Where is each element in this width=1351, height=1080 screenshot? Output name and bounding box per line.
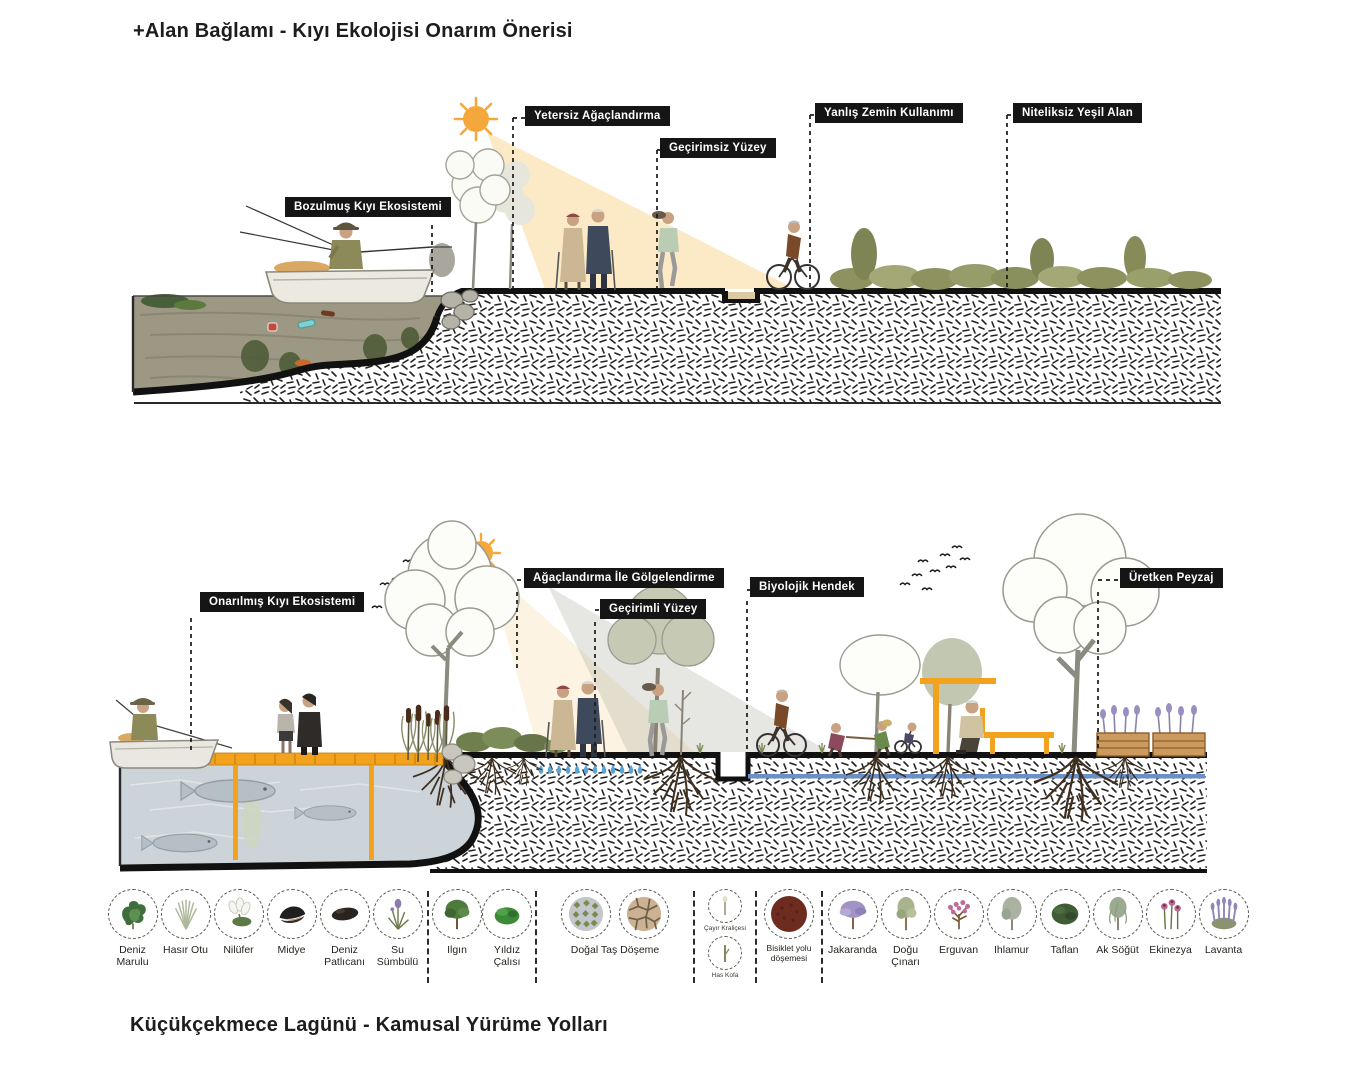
legend-label: Deniz Patlıcanı (318, 944, 371, 968)
judas-tree-icon (940, 895, 978, 933)
label-poor-quality-green-area: Niteliksiz Yeşil Alan (1013, 103, 1142, 123)
legend-item-nilufer: Nilüfer (212, 889, 265, 956)
water-lily-icon (220, 895, 258, 933)
echinacea-icon (1152, 895, 1190, 933)
legend-item-ak-sogut: Ak Söğüt (1091, 889, 1144, 956)
legend-item-ilgin: Ilgın (432, 889, 482, 956)
laurel-bush-icon (1046, 895, 1084, 933)
sea-cucumber-icon (326, 895, 364, 933)
water-hyacinth-icon (379, 895, 417, 933)
lavender-icon (1205, 895, 1243, 933)
legend-item-ekinezya: Ekinezya (1144, 889, 1197, 956)
legend-label: Doğu Çınarı (879, 944, 932, 968)
legend-label: Ilgın (447, 944, 467, 956)
jacaranda-tree-icon (834, 895, 872, 933)
bulrush-icon (713, 941, 737, 965)
legend-label: Erguvan (939, 944, 978, 956)
fisherman-top (329, 223, 363, 270)
label-biological-ditch: Biyolojik Hendek (750, 577, 864, 597)
legend-item-erguvan: Erguvan (932, 889, 985, 956)
legend-label: Doğal Taş Döşeme (571, 944, 660, 956)
legend-item-su-sumbulu: Su Sümbülü (371, 889, 424, 968)
label-restored-coastal-ecosystem: Onarılmış Kıyı Ekosistemi (200, 592, 364, 612)
star-bush-icon (488, 895, 526, 933)
legend-item-lavanta: Lavanta (1197, 889, 1250, 956)
label-shading-with-afforestation: Ağaçlandırma İle Gölgelendirme (524, 568, 724, 588)
label-wrong-ground-use: Yanlış Zemin Kullanımı (815, 103, 963, 123)
deck-post (233, 765, 238, 860)
mussel-icon (273, 895, 311, 933)
legend-label: Bisiklet yolu döşemesi (760, 944, 818, 964)
legend-label: Midye (277, 944, 305, 956)
legend-divider (535, 891, 537, 983)
sketch-tree-top (446, 149, 535, 289)
stone-crazy-paving-icon (625, 895, 663, 933)
linden-tree-icon (993, 895, 1031, 933)
legend-label: Yıldız Çalısı (482, 944, 532, 968)
couple-on-deck (277, 694, 322, 756)
top-title: +Alan Bağlamı - Kıyı Ekolojisi Onarım Ön… (133, 20, 573, 43)
legend-item-small-plants: Çayır Kraliçesi Has Kofa (698, 889, 752, 983)
legend-label: Ekinezya (1149, 944, 1192, 956)
bird-flock-right (900, 546, 970, 590)
sun-icon (455, 98, 497, 140)
white-willow-icon (1099, 895, 1137, 933)
legend-label: Deniz Marulu (106, 944, 159, 968)
legend-label-small: Çayır Kraliçesi (704, 925, 746, 932)
bioswale-trench (718, 752, 748, 779)
label-productive-landscape: Üretken Peyzaj (1120, 568, 1223, 588)
planter-boxes (1097, 703, 1205, 756)
legend-divider (821, 891, 823, 983)
bike-path-surface-icon (769, 894, 809, 934)
legend-label: Nilüfer (223, 944, 253, 956)
legend-item-jakaranda: Jakaranda (826, 889, 879, 956)
poster-canvas: +Alan Bağlamı - Kıyı Ekolojisi Onarım Ön… (0, 0, 1351, 1080)
sketch-tree-right (1003, 514, 1159, 755)
legend-item-dogu-cinari: Doğu Çınarı (879, 889, 932, 968)
legend-item-deniz-patlicani: Deniz Patlıcanı (318, 889, 371, 968)
bottom-title: Küçükçekmece Lagünü - Kamusal Yürüme Yol… (130, 1014, 608, 1037)
legend-label: Jakaranda (828, 944, 877, 956)
subsurface-water-line (748, 774, 1205, 779)
legend-item-dogal-tas-doseme: Doğal Taş Döşeme (540, 889, 690, 956)
legend-label-small: Has Kofa (712, 972, 739, 979)
legend-label: Ihlamur (994, 944, 1029, 956)
deck-post (369, 765, 374, 860)
legend-divider (427, 891, 429, 983)
legend-divider (755, 891, 757, 983)
legend-item-yildiz-calisi: Yıldız Çalısı (482, 889, 532, 968)
legend-label: Ak Söğüt (1096, 944, 1139, 956)
person-on-bench (956, 700, 984, 754)
legend-label: Lavanta (1205, 944, 1242, 956)
legend-item-bisiklet-yolu: Bisiklet yolu döşemesi (760, 889, 818, 964)
legend-item-deniz-marulu: Deniz Marulu (106, 889, 159, 968)
drain-notch-top (728, 292, 755, 299)
label-degraded-coastal-ecosystem: Bozulmuş Kıyı Ekosistemi (285, 197, 451, 217)
legend-label: Su Sümbülü (371, 944, 424, 968)
label-permeable-surface: Geçirimli Yüzey (600, 599, 706, 619)
legend-label: Taflan (1050, 944, 1078, 956)
meadowsweet-icon (713, 894, 737, 918)
sea-lettuce-icon (114, 895, 152, 933)
legend-item-ihlamur: Ihlamur (985, 889, 1038, 956)
label-insufficient-afforestation: Yetersiz Ağaçlandırma (525, 106, 670, 126)
legend-label: Hasır Otu (163, 944, 208, 956)
legend-divider (693, 891, 695, 983)
label-impermeable-surface: Geçirimsiz Yüzey (660, 138, 776, 158)
legend-item-taflan: Taflan (1038, 889, 1091, 956)
legend-item-midye: Midye (265, 889, 318, 956)
legend-item-hasir-otu: Hasır Otu (159, 889, 212, 956)
shrub-row-top (830, 228, 1212, 290)
fishing-boat-top (240, 206, 455, 303)
fisherman-bottom (130, 698, 158, 740)
rush-grass-icon (167, 895, 205, 933)
legend-row: Deniz Marulu Hasır Otu Nilüfer Midye (106, 889, 1250, 983)
natural-stone-paving-icon (567, 895, 605, 933)
underwater-plant-bottom (242, 796, 262, 848)
tamarisk-tree-icon (438, 895, 476, 933)
sketch-tree-left (385, 521, 519, 753)
plane-tree-icon (887, 895, 925, 933)
